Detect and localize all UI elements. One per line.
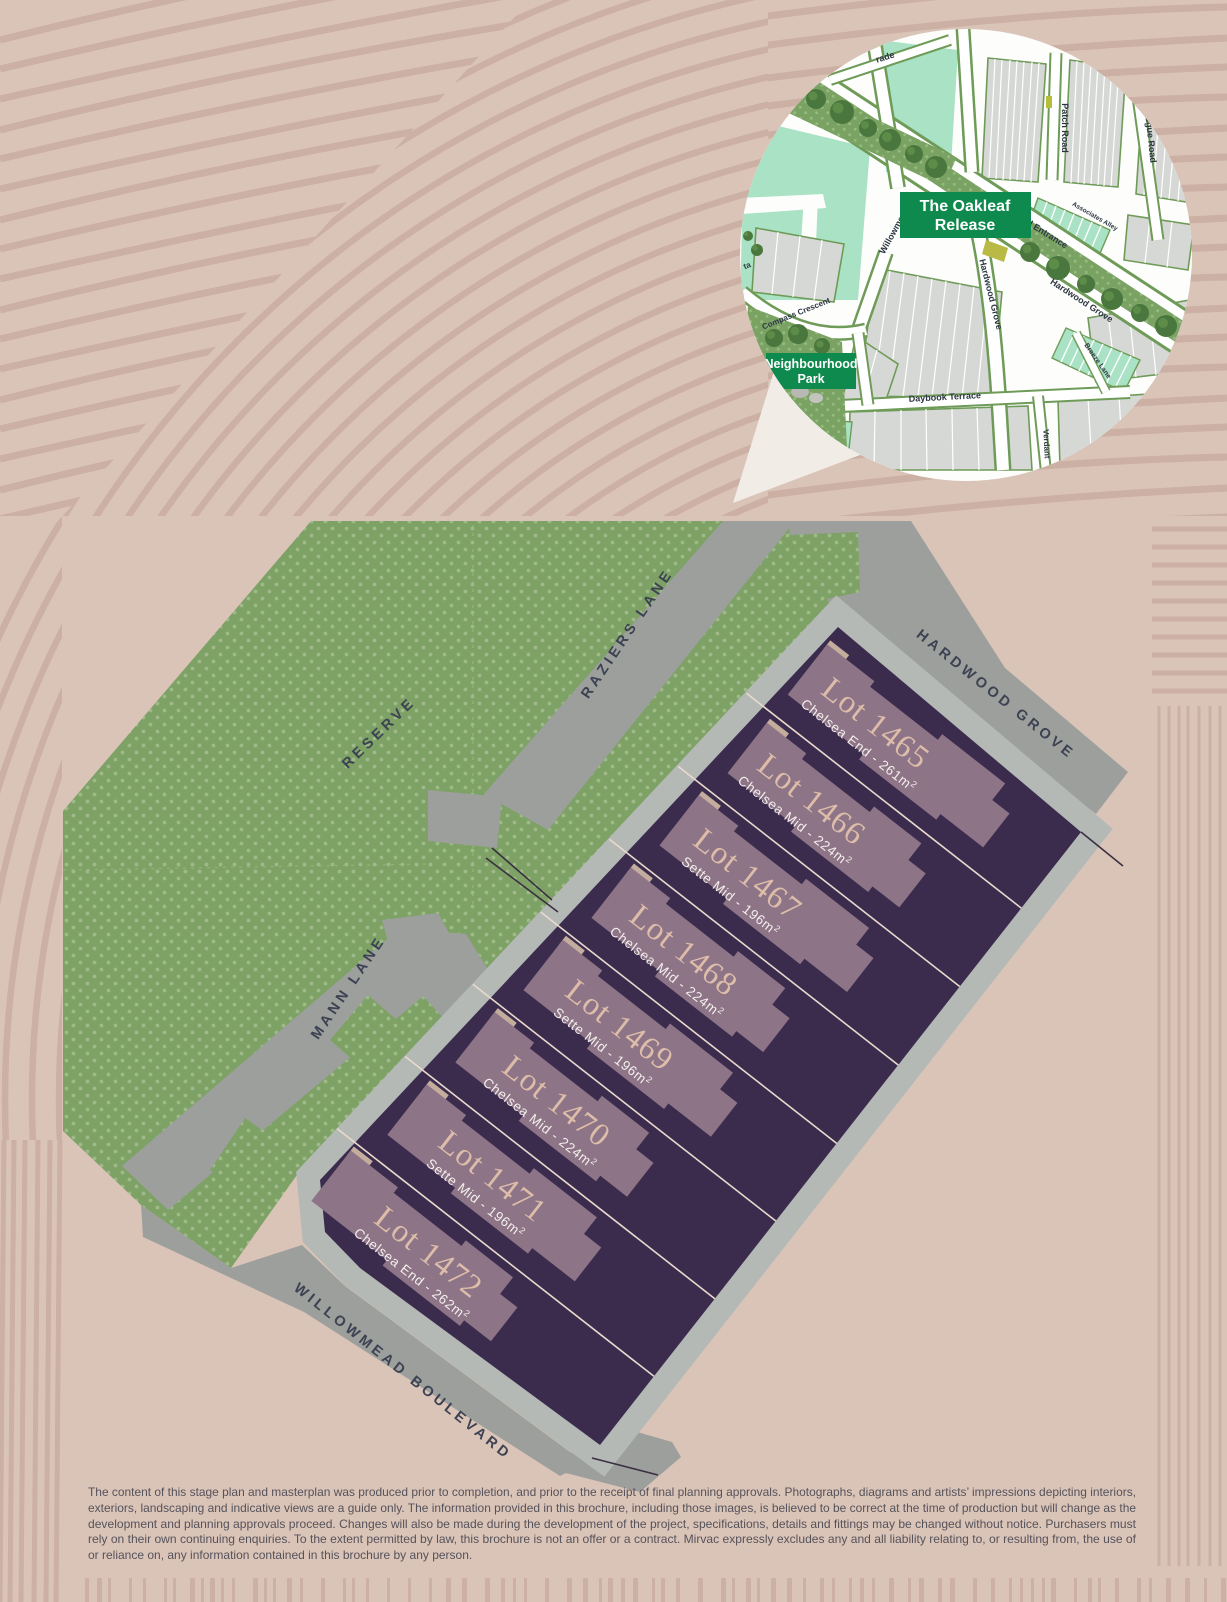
svg-text:exteriors, landscaping and ind: exteriors, landscaping and indicative vi… [88, 1501, 1136, 1515]
svg-text:or reliance on, any informatio: or reliance on, any information containe… [88, 1548, 472, 1562]
svg-text:The content of this stage plan: The content of this stage plan and maste… [88, 1485, 1136, 1499]
svg-text:Neighbourhood: Neighbourhood [764, 357, 857, 371]
svg-text:Park: Park [797, 372, 824, 386]
svg-text:Verdant: Verdant [1041, 429, 1052, 459]
svg-text:development and planning appro: development and planning approvals proce… [88, 1517, 1137, 1531]
svg-text:The Oakleaf: The Oakleaf [920, 198, 1011, 215]
svg-text:rely on their own continuing e: rely on their own continuing enquiries. … [88, 1532, 1137, 1546]
svg-text:Release: Release [935, 217, 996, 234]
svg-text:Patch Road: Patch Road [1060, 103, 1070, 153]
